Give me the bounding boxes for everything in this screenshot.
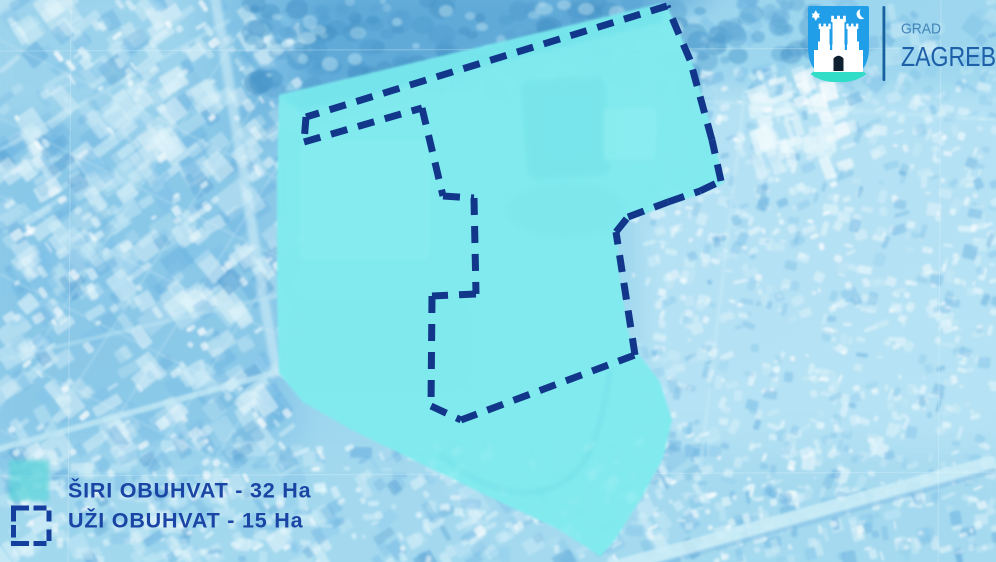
svg-text:ŠIRI OBUHVAT - 32 Ha: ŠIRI OBUHVAT - 32 Ha [68,478,312,503]
svg-text:UŽI OBUHVAT - 15 Ha: UŽI OBUHVAT - 15 Ha [68,508,304,533]
svg-text:ZAGREB: ZAGREB [901,41,996,72]
svg-text:GRAD: GRAD [901,21,941,38]
